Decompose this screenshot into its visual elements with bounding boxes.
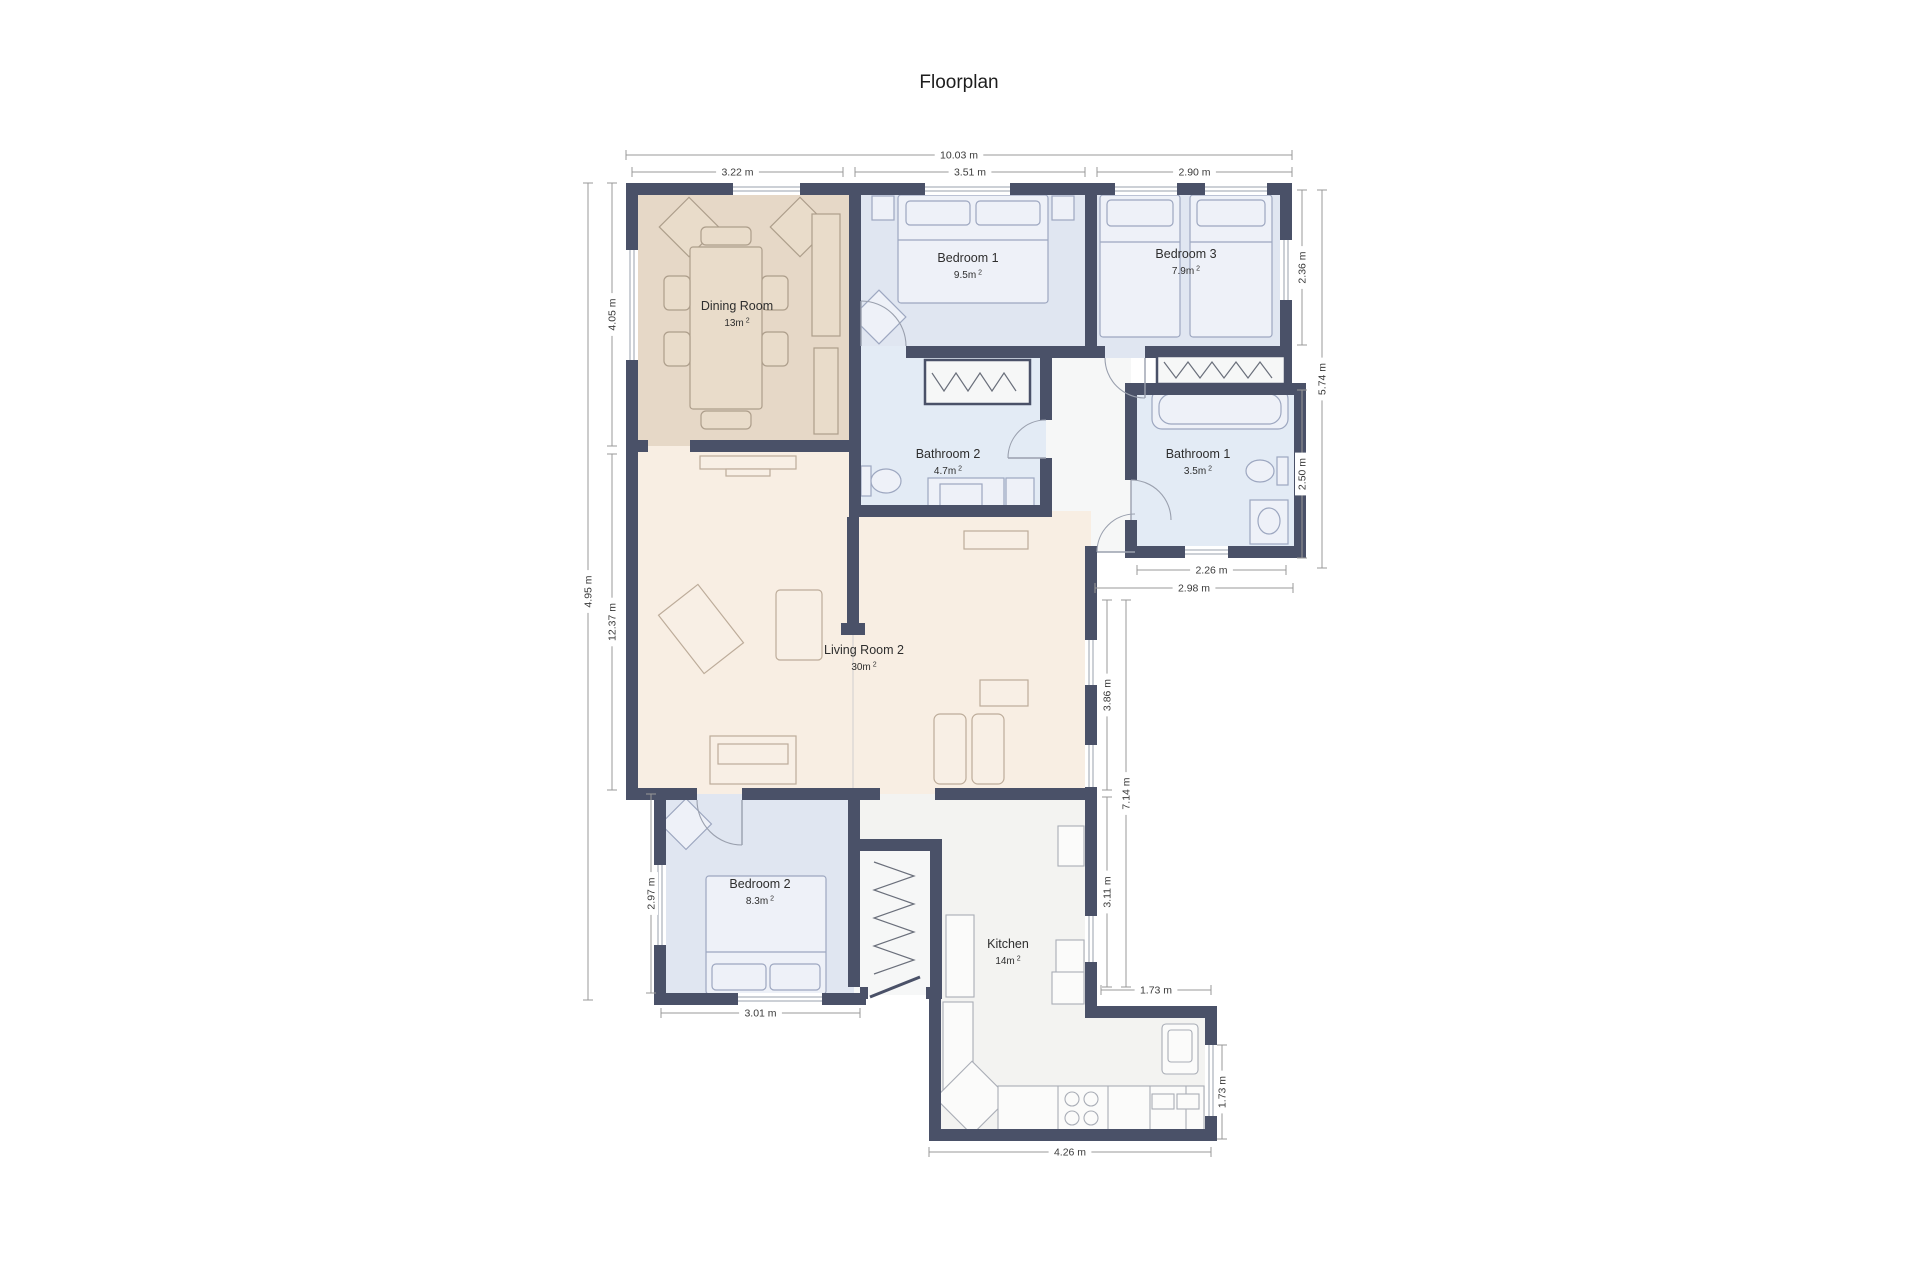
dimension-text: 2.36 m — [1297, 251, 1309, 283]
room-name-bathroom2: Bathroom 2 — [916, 447, 981, 461]
dimension-text: 4.95 m — [583, 575, 595, 607]
room-name-living: Living Room 2 — [824, 643, 904, 657]
window — [733, 183, 800, 195]
wall — [1040, 458, 1052, 517]
wall — [848, 839, 942, 851]
furniture-pillow — [1197, 200, 1265, 226]
dimension-label: 2.50 m — [1295, 453, 1309, 496]
furniture-pillow — [1107, 200, 1173, 226]
furniture-tv — [726, 469, 770, 476]
furniture-pillow — [906, 201, 970, 225]
window — [1205, 183, 1267, 195]
dimension-text: 2.50 m — [1297, 458, 1309, 490]
window — [1280, 240, 1292, 300]
dimension-text: 3.86 m — [1102, 679, 1114, 711]
dimension-text: 2.98 m — [1178, 583, 1210, 595]
furniture-burner — [1084, 1092, 1098, 1106]
dimension-label: 2.90 m — [1173, 165, 1216, 179]
wall — [935, 788, 1097, 800]
dimension-label: 5.74 m — [1315, 358, 1329, 401]
dimension-text: 2.90 m — [1178, 167, 1210, 179]
dimension-text: 3.51 m — [954, 167, 986, 179]
room-floor-closet2 — [854, 845, 936, 995]
wall — [690, 440, 861, 452]
window — [1085, 640, 1097, 685]
wall — [929, 1129, 1217, 1141]
furniture-coffee-table — [980, 680, 1028, 706]
room-name-bedroom3: Bedroom 3 — [1155, 247, 1216, 261]
window — [626, 250, 638, 360]
furniture-cabinet — [946, 915, 974, 997]
wall — [1085, 1006, 1217, 1018]
closet-box — [925, 360, 1030, 404]
dimension-label: 3.51 m — [949, 165, 992, 179]
wall — [848, 794, 860, 987]
furniture-burner — [1065, 1092, 1079, 1106]
wall — [906, 346, 1091, 358]
dimension-text: 4.26 m — [1054, 1147, 1086, 1159]
wall — [1085, 183, 1097, 358]
furniture-toilet-tank — [861, 466, 871, 496]
dimension-text: 1.73 m — [1140, 985, 1172, 997]
room-name-kitchen: Kitchen — [987, 937, 1029, 951]
dimension-label: 2.26 m — [1190, 563, 1233, 577]
wall — [930, 851, 942, 999]
dimension-text: 1.73 m — [1217, 1076, 1229, 1108]
dimension-text: 4.05 m — [607, 298, 619, 330]
furniture-pillow — [712, 964, 766, 990]
window — [738, 993, 822, 1005]
page-title: Floorplan — [919, 72, 998, 93]
wall — [860, 987, 868, 999]
room-name-bedroom1: Bedroom 1 — [937, 251, 998, 265]
furniture-nightstand — [872, 196, 894, 220]
dimension-label: 2.36 m — [1295, 246, 1309, 289]
dimension-label: 3.22 m — [716, 165, 759, 179]
dimension-text: 12.37 m — [607, 603, 619, 641]
furniture-cabinet — [814, 348, 838, 434]
dimension-label: 12.37 m — [605, 598, 619, 647]
furniture-chair — [701, 227, 751, 245]
dimension-label: 4.95 m — [581, 570, 595, 613]
dimension-text: 3.11 m — [1102, 876, 1114, 908]
dimension-text: 3.01 m — [744, 1008, 776, 1020]
window — [1115, 183, 1177, 195]
dimension-text: 7.14 m — [1121, 777, 1133, 809]
furniture-nightstand — [1052, 196, 1074, 220]
furniture-chair — [762, 332, 788, 366]
dimension-text: 2.26 m — [1195, 565, 1227, 577]
dimension-label: 4.05 m — [605, 293, 619, 336]
wall — [849, 183, 861, 517]
furniture-toilet-bowl — [1246, 460, 1274, 482]
dimension-label: 1.73 m — [1215, 1071, 1229, 1114]
floorplan: Floorplan 10.03 m3.22 m3.51 m2.90 m4.95 … — [0, 0, 1920, 1280]
dimension-label: 4.26 m — [1049, 1145, 1092, 1159]
furniture-chair — [701, 411, 751, 429]
furniture-sofa — [934, 714, 966, 784]
room-name-bedroom2: Bedroom 2 — [729, 877, 790, 891]
furniture-sofa — [972, 714, 1004, 784]
furniture-cabinet — [1052, 972, 1084, 1004]
furniture-tv-console — [700, 456, 796, 469]
furniture-pillow — [770, 964, 820, 990]
room-name-dining: Dining Room — [701, 299, 773, 313]
dimension-label: 2.98 m — [1173, 581, 1216, 595]
dimension-label: 3.01 m — [739, 1006, 782, 1020]
furniture-sink — [1258, 508, 1280, 534]
wall — [1040, 346, 1052, 420]
dimension-text: 3.22 m — [721, 167, 753, 179]
dimension-text: 2.97 m — [646, 877, 658, 909]
dimension-label: 7.14 m — [1119, 772, 1133, 815]
dimension-label: 2.97 m — [644, 872, 658, 915]
furniture-chair — [664, 332, 690, 366]
furniture-burner — [1065, 1111, 1079, 1125]
dimension-label: 10.03 m — [935, 148, 984, 162]
dimension-label: 3.11 m — [1100, 871, 1114, 914]
furniture-sink-basin — [1152, 1094, 1174, 1109]
dimension-label: 3.86 m — [1100, 674, 1114, 717]
wall — [849, 505, 1052, 517]
room-name-bathroom1: Bathroom 1 — [1166, 447, 1231, 461]
wall — [929, 999, 941, 1141]
furniture-sideboard — [812, 214, 840, 336]
furniture-desk-top — [718, 744, 788, 764]
wall — [847, 517, 859, 623]
window — [1085, 745, 1097, 787]
furniture-cabinet — [1058, 826, 1084, 866]
dimension-text: 10.03 m — [940, 150, 978, 162]
window — [1185, 546, 1228, 558]
furniture-toilet-tank — [1277, 457, 1288, 485]
furniture-burner — [1084, 1111, 1098, 1125]
furniture-toilet-bowl — [871, 469, 901, 493]
dimension-text: 5.74 m — [1317, 363, 1329, 395]
furniture-armchair — [776, 590, 822, 660]
wall — [1125, 383, 1137, 480]
furniture-pillow — [976, 201, 1040, 225]
wall — [1085, 546, 1097, 558]
furniture-kitchen-chair-seat — [1168, 1030, 1192, 1062]
furniture-sideboard — [964, 531, 1028, 549]
window — [1085, 916, 1097, 962]
wall — [841, 623, 865, 635]
furniture-sink — [940, 484, 982, 506]
furniture-bathtub-inner — [1159, 394, 1281, 424]
window — [925, 183, 1010, 195]
furniture-sink-basin — [1177, 1094, 1199, 1109]
furniture-chair — [664, 276, 690, 310]
dimension-label: 1.73 m — [1135, 983, 1178, 997]
